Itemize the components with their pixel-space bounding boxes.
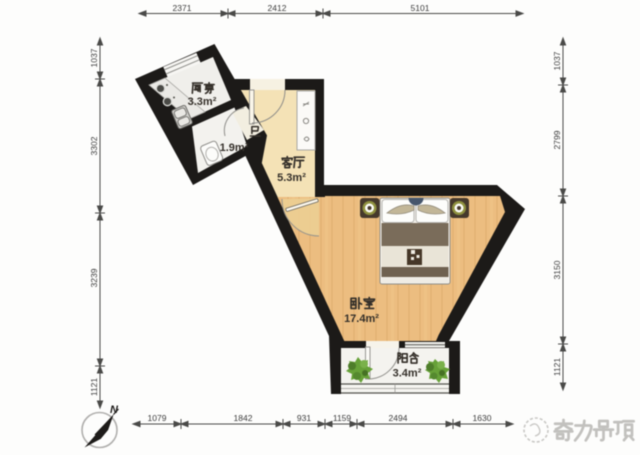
svg-text:3302: 3302 — [89, 136, 99, 155]
svg-text:3239: 3239 — [89, 268, 99, 287]
svg-text:1079: 1079 — [148, 413, 167, 423]
svg-text:1.9m²: 1.9m² — [220, 142, 249, 154]
svg-text:1121: 1121 — [89, 378, 99, 397]
svg-text:1159: 1159 — [333, 413, 352, 423]
svg-text:2799: 2799 — [552, 130, 562, 149]
svg-text:2494: 2494 — [389, 413, 408, 423]
svg-text:1121: 1121 — [552, 358, 562, 377]
svg-text:2371: 2371 — [173, 3, 192, 13]
svg-text:5.3m²: 5.3m² — [277, 172, 306, 184]
svg-text:1630: 1630 — [473, 413, 492, 423]
svg-text:2412: 2412 — [268, 3, 287, 13]
svg-text:3.3m²: 3.3m² — [188, 96, 217, 108]
svg-text:931: 931 — [297, 413, 311, 423]
svg-text:3.4m²: 3.4m² — [393, 368, 422, 380]
svg-text:1842: 1842 — [234, 413, 253, 423]
svg-text:1037: 1037 — [552, 51, 562, 70]
svg-text:N: N — [110, 404, 119, 416]
svg-text:3150: 3150 — [552, 260, 562, 279]
svg-text:1037: 1037 — [89, 48, 99, 67]
svg-text:5101: 5101 — [411, 3, 430, 13]
svg-text:17.4m²: 17.4m² — [344, 313, 379, 325]
